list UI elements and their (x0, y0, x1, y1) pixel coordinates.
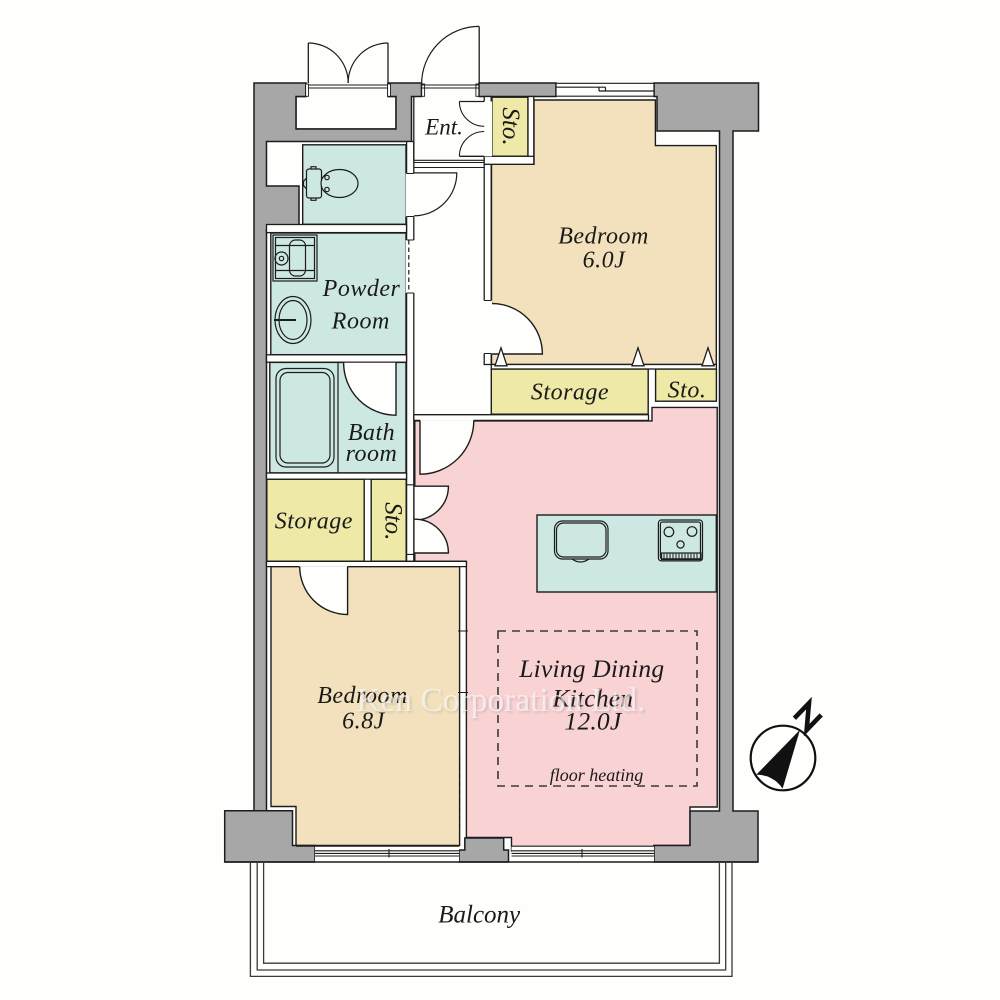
svg-text:Sto.: Sto. (379, 502, 406, 540)
svg-text:Sto.: Sto. (497, 107, 524, 145)
svg-text:room: room (346, 441, 398, 467)
svg-text:6.0J: 6.0J (583, 248, 627, 274)
svg-text:Room: Room (331, 309, 390, 335)
svg-text:Ent.: Ent. (424, 115, 463, 140)
svg-text:Ken Corporation Ltd.: Ken Corporation Ltd. (356, 682, 645, 719)
svg-text:Powder: Powder (322, 276, 401, 302)
svg-text:Sto.: Sto. (668, 378, 707, 404)
svg-text:Storage: Storage (531, 380, 609, 406)
svg-text:Living Dining: Living Dining (518, 654, 664, 683)
svg-text:Balcony: Balcony (438, 902, 521, 929)
svg-text:Storage: Storage (275, 509, 353, 535)
svg-text:Bedroom: Bedroom (558, 224, 649, 250)
svg-text:floor heating: floor heating (550, 765, 644, 785)
